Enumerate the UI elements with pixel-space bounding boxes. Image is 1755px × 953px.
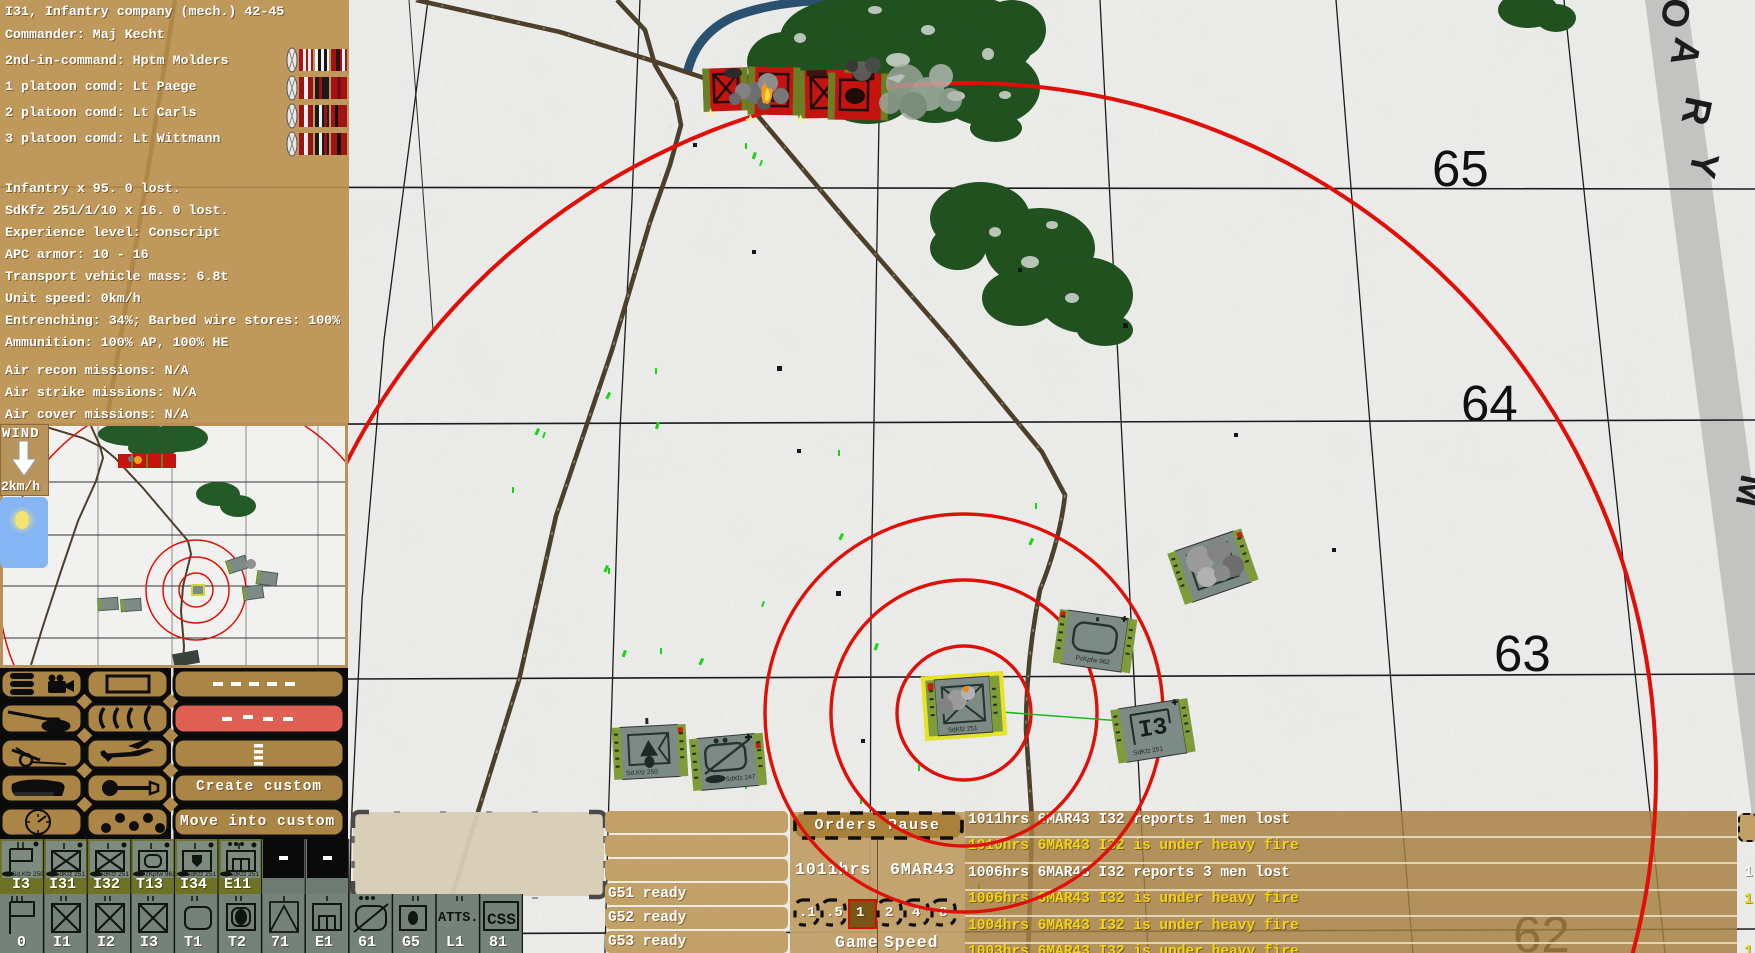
- svg-text:CSS: CSS: [487, 911, 516, 929]
- svg-text:ATTS.: ATTS.: [438, 911, 479, 926]
